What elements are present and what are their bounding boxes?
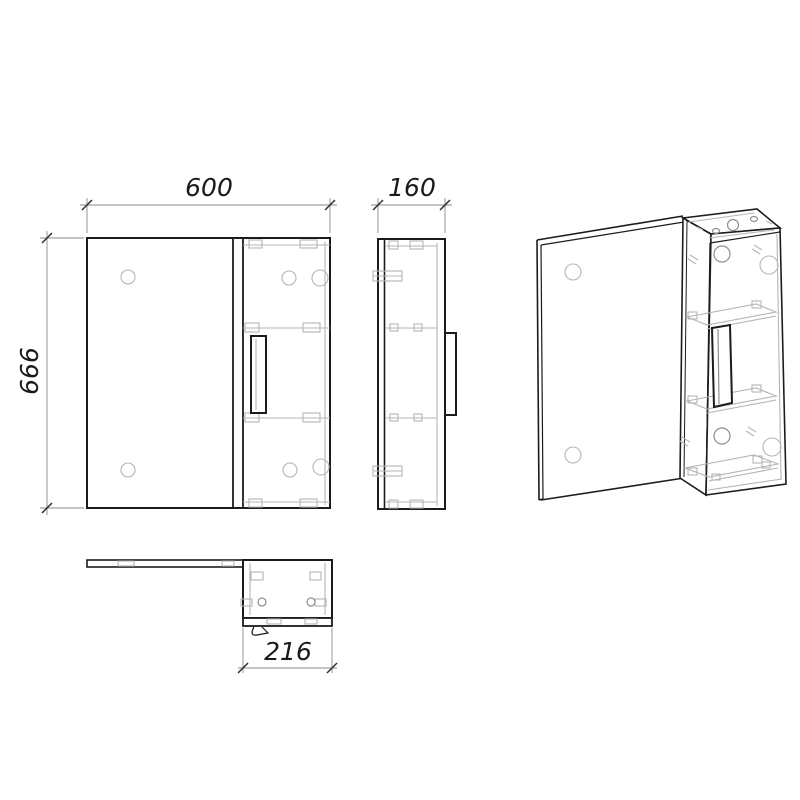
door-handle-side <box>445 333 456 415</box>
front-view <box>87 238 330 508</box>
side-view <box>373 239 456 509</box>
iso-door-handle <box>712 325 732 407</box>
technical-drawing: 600 666 160 216 <box>0 0 800 800</box>
iso-cabinet-body <box>680 209 786 495</box>
mirror-hole-bottom <box>565 447 581 463</box>
door-handle-front <box>251 336 266 413</box>
iso-mirror-panel <box>537 216 684 500</box>
isometric-view <box>537 209 786 500</box>
front-outline <box>87 238 330 508</box>
dim-label-overall-height: 666 <box>15 347 44 395</box>
dim-label-overall-width: 600 <box>185 173 233 202</box>
dimension-depth: 160 <box>371 173 452 233</box>
plan-handle-profile <box>252 626 268 635</box>
plan-view <box>87 560 332 635</box>
mirror-hole-top <box>565 264 581 280</box>
drawing-sheet: 600 666 160 216 <box>0 0 800 800</box>
plan-cabinet-box <box>243 560 332 618</box>
plan-mirror-strip <box>87 560 243 567</box>
dim-label-cabinet-width: 216 <box>264 637 312 666</box>
dimension-overall-width: 600 <box>80 173 337 233</box>
dim-label-depth: 160 <box>388 173 436 202</box>
plan-door-strip <box>243 618 332 626</box>
side-outline <box>378 239 445 509</box>
dimension-overall-height: 666 <box>15 231 84 515</box>
